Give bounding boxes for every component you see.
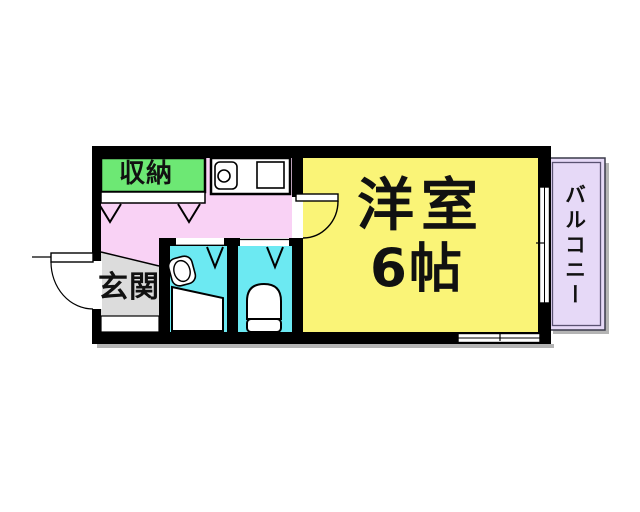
entrance-label: 玄関 (98, 273, 160, 303)
wall-washroom-toilet (227, 238, 238, 332)
closet-track (101, 192, 205, 203)
balcony-label: バルコニー (564, 184, 585, 309)
wall-top (92, 146, 551, 158)
main-room-size-label: 6帖 (370, 243, 464, 296)
main-room-door-leaf (296, 194, 338, 201)
toilet-bowl-icon (247, 284, 281, 319)
toilet-base-icon (247, 319, 281, 332)
floor-plan-graphic (0, 0, 640, 512)
main-room-door-opening (292, 197, 303, 238)
floor-plan: 収納 玄関 洋室 6帖 バルコニー (0, 0, 640, 512)
plan-shadow (97, 344, 554, 348)
kitchen-sink-icon (257, 162, 284, 188)
entrance-door-arc (51, 262, 93, 309)
entrance-doma-step (101, 316, 159, 332)
main-room-name-label: 洋室 (357, 178, 485, 235)
entrance-door-leaf (51, 253, 93, 262)
wall-washroom-left (159, 238, 170, 332)
storage-label: 収納 (119, 161, 173, 187)
burner-icon (218, 170, 230, 182)
wall-left (92, 146, 101, 344)
